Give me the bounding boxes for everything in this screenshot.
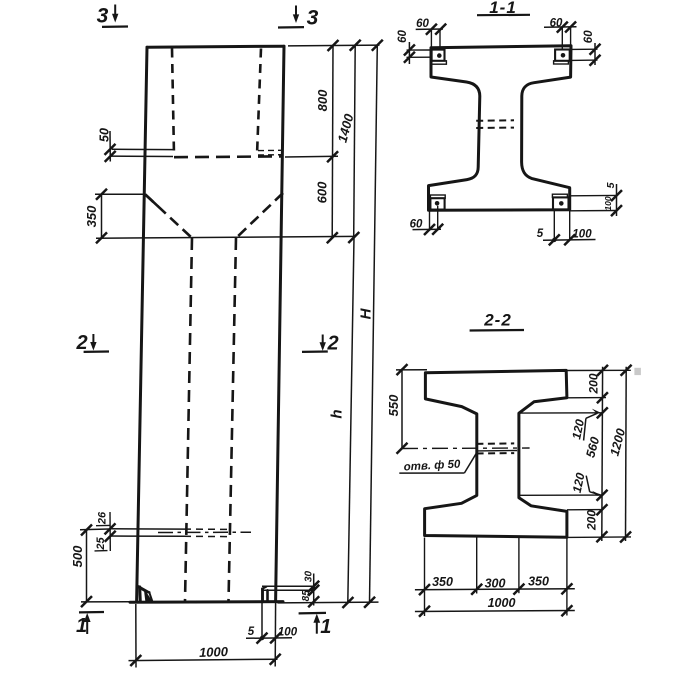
svg-text:3: 3 (97, 5, 109, 28)
svg-text:500: 500 (70, 545, 85, 567)
svg-text:550: 550 (386, 394, 401, 416)
svg-text:отв. ф 50: отв. ф 50 (403, 458, 461, 473)
svg-text:2: 2 (75, 332, 87, 354)
svg-text:120: 120 (570, 471, 588, 494)
svg-text:300: 300 (485, 577, 506, 591)
svg-text:60: 60 (416, 18, 429, 30)
svg-text:1200: 1200 (607, 427, 628, 458)
svg-text:5: 5 (248, 626, 255, 638)
svg-text:1000: 1000 (488, 596, 516, 610)
svg-text:600: 600 (314, 181, 329, 203)
svg-text:350: 350 (432, 575, 453, 589)
svg-text:1400: 1400 (334, 112, 356, 145)
svg-text:H: H (357, 307, 374, 319)
svg-text:h: h (328, 409, 345, 418)
svg-text:30: 30 (303, 571, 314, 583)
svg-text:60: 60 (583, 30, 595, 43)
svg-text:100: 100 (603, 196, 613, 210)
svg-text:1000: 1000 (199, 644, 229, 660)
svg-text:800: 800 (315, 89, 330, 111)
svg-text:25: 25 (95, 537, 107, 551)
svg-text:5: 5 (537, 228, 544, 240)
svg-text:350: 350 (528, 575, 549, 589)
svg-text:2: 2 (326, 333, 338, 355)
svg-text:3: 3 (307, 7, 319, 30)
svg-text:200: 200 (584, 510, 598, 531)
svg-text:50: 50 (97, 128, 111, 142)
svg-text:100: 100 (278, 627, 298, 639)
svg-text:560: 560 (583, 435, 602, 459)
svg-text:350: 350 (84, 205, 99, 227)
svg-text:200: 200 (587, 373, 601, 394)
svg-text:1: 1 (320, 616, 331, 638)
svg-text:85: 85 (301, 590, 312, 602)
svg-text:2-2: 2-2 (483, 311, 512, 330)
svg-text:60: 60 (397, 30, 409, 43)
svg-text:60: 60 (410, 219, 423, 231)
svg-text:5: 5 (605, 182, 617, 188)
svg-text:1: 1 (76, 615, 87, 637)
svg-text:26: 26 (96, 511, 108, 525)
svg-text:100: 100 (572, 228, 592, 240)
